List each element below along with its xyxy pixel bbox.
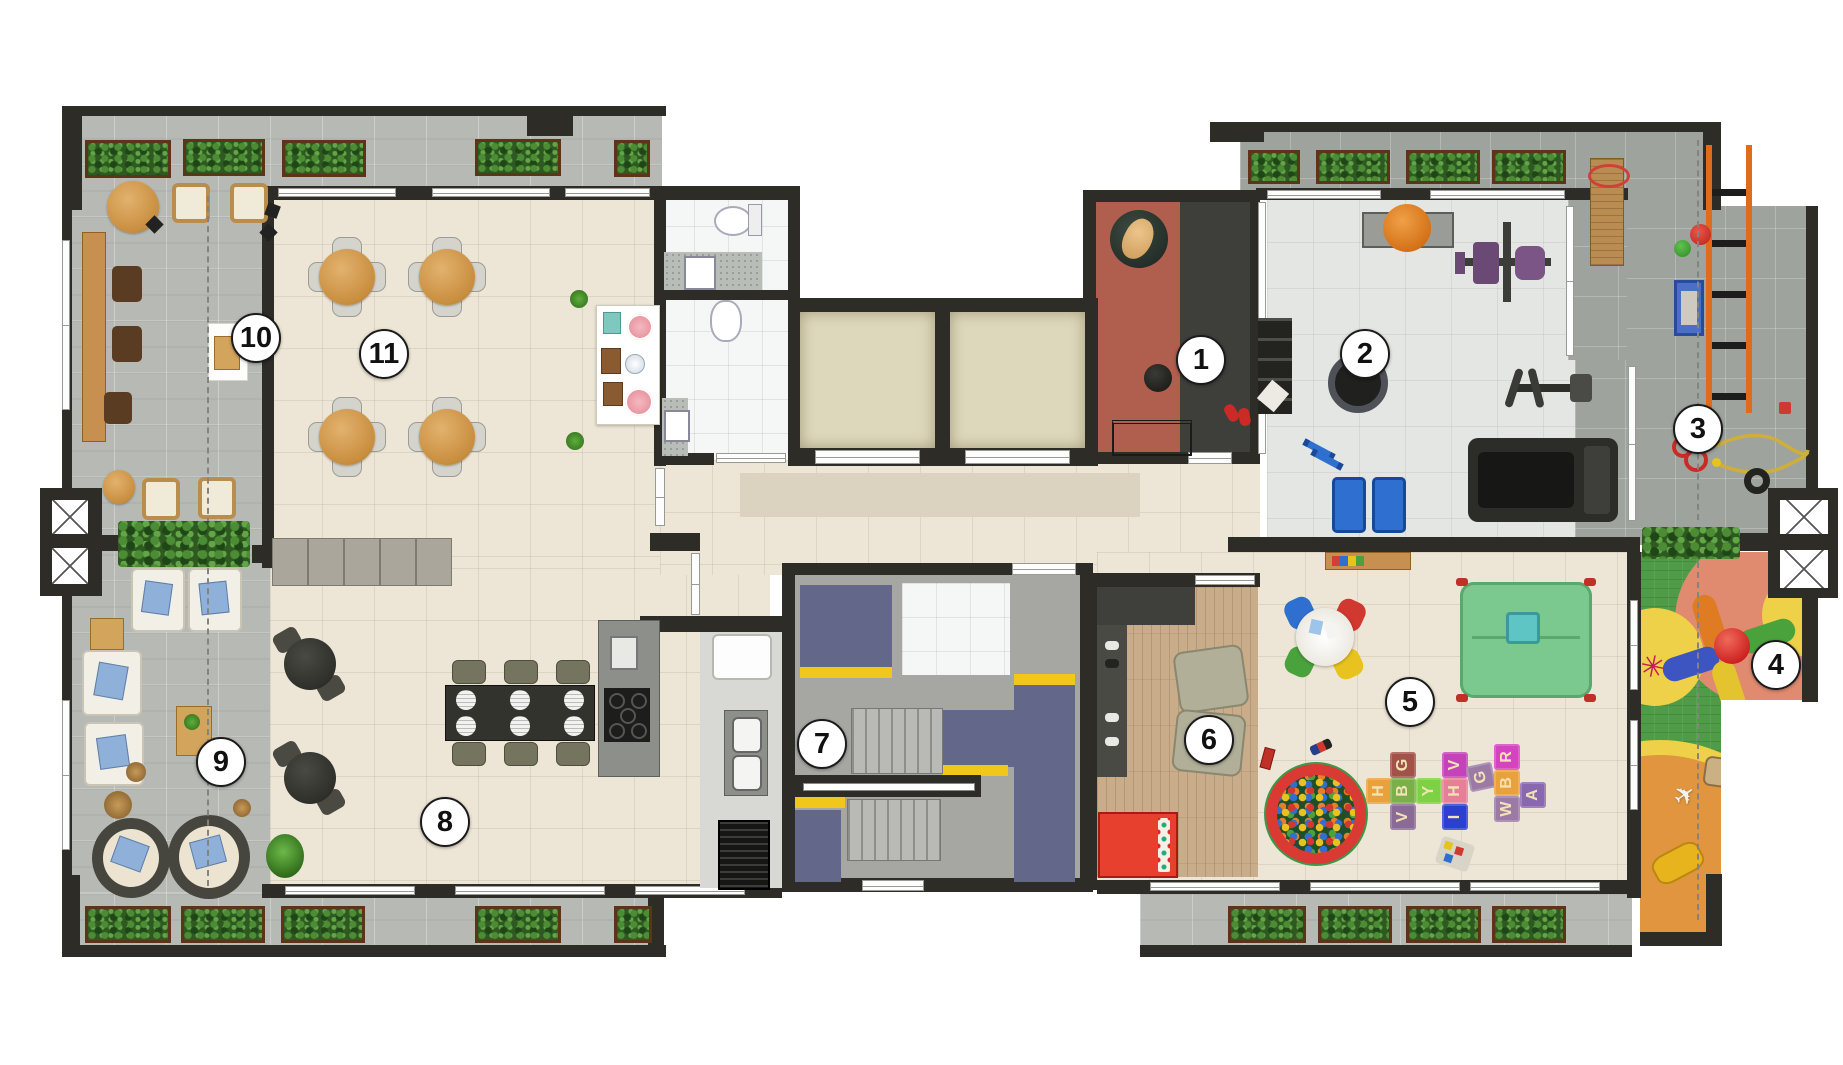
chair	[452, 742, 486, 766]
plate-icon	[625, 354, 645, 374]
bar-stool	[112, 326, 142, 362]
alphabet-mat: B	[1390, 778, 1416, 804]
planter	[475, 139, 561, 176]
kids-table-top	[1296, 608, 1354, 666]
safety-stripe	[795, 797, 845, 808]
door-massage-room	[1188, 452, 1232, 464]
incline-bench	[1332, 477, 1366, 533]
stair-right-wall	[1080, 575, 1097, 890]
exercise-ball	[1383, 204, 1431, 252]
window	[1630, 720, 1638, 810]
playhouse-foot	[1584, 694, 1596, 702]
planter	[281, 906, 365, 943]
towel-rack	[1112, 420, 1192, 456]
stair-landing	[1014, 685, 1075, 882]
tray-icon	[603, 312, 621, 334]
burner	[631, 723, 647, 739]
bistro-set	[278, 750, 342, 810]
floor-plant-icon	[266, 834, 304, 878]
incline-bench	[1372, 477, 1406, 533]
medicine-ball-red	[1690, 224, 1711, 245]
stair-handrail	[803, 783, 975, 791]
climbing-ladder	[1706, 145, 1752, 413]
window	[1310, 882, 1460, 891]
lounge-pouf	[1172, 643, 1250, 714]
round-table	[419, 249, 475, 305]
buffet-table	[596, 305, 660, 425]
bar-stool	[104, 392, 132, 424]
ottoman	[233, 799, 251, 817]
chair	[556, 660, 590, 684]
planter	[1316, 150, 1390, 184]
planter	[1228, 906, 1306, 943]
stair-landing	[942, 710, 1014, 767]
stool-icon	[1144, 364, 1172, 392]
right-elevator-shaft-2	[1778, 548, 1830, 590]
sink-basin	[732, 755, 762, 791]
hedge	[1642, 527, 1740, 559]
door-stairs	[1012, 563, 1076, 575]
room-badge-1: 1	[1176, 335, 1226, 385]
room-badge-10: 10	[231, 313, 281, 363]
room-badge-5: 5	[1385, 677, 1435, 727]
machine-pads	[1455, 252, 1465, 274]
alphabet-mat: G	[1466, 762, 1497, 793]
ball-pit	[1266, 764, 1366, 864]
window	[1195, 575, 1255, 585]
playground-notch-mask	[1721, 700, 1843, 945]
sofa-pillow	[93, 662, 128, 701]
stair-ante-room	[902, 583, 1010, 675]
ottoman	[104, 791, 132, 819]
stair-landing	[800, 585, 892, 673]
room-badge-8: 8	[420, 797, 470, 847]
card-table	[90, 618, 124, 650]
plate-icon	[564, 690, 584, 710]
armchair	[198, 477, 236, 519]
alphabet-mat: A	[1520, 782, 1546, 808]
dining-set	[413, 401, 481, 473]
planter	[1492, 150, 1566, 184]
dining-set	[313, 241, 381, 313]
ball-yellow-small	[1712, 458, 1721, 467]
alphabet-mat: W	[1494, 796, 1520, 822]
weight-machine	[1455, 222, 1561, 302]
game-buttons	[1158, 818, 1170, 872]
tray-icon	[601, 348, 621, 374]
planter	[1406, 150, 1480, 184]
bistro-set	[278, 636, 342, 696]
armchair	[172, 183, 210, 223]
wall	[1640, 932, 1722, 946]
sink-icon	[664, 410, 690, 442]
window	[1150, 882, 1280, 891]
plate-icon	[456, 716, 476, 736]
gamepad-icon	[1105, 641, 1119, 650]
modular-sofa	[272, 538, 452, 586]
round-table	[319, 409, 375, 465]
alphabet-mat: R	[1494, 744, 1520, 770]
kitchen-top-wall	[640, 616, 795, 632]
sofa-pillow	[96, 734, 130, 770]
lobby-runner-rug	[740, 473, 1140, 517]
room-badge-2: 2	[1340, 329, 1390, 379]
wall-stub	[650, 533, 700, 551]
room-badge-6: 6	[1184, 715, 1234, 765]
shrub-icon	[570, 290, 588, 308]
bathroom-right-wall	[788, 186, 800, 300]
media-wall	[1097, 587, 1195, 625]
block	[1443, 853, 1453, 863]
toilet-icon	[714, 206, 752, 236]
treadmill-belt	[1478, 452, 1574, 508]
treadmill-console	[1584, 446, 1610, 514]
daybed-pillow	[141, 580, 173, 616]
burner	[609, 723, 625, 739]
kids-table-set	[1286, 596, 1364, 680]
party-room-left-wall	[262, 186, 274, 568]
cooktop	[604, 688, 650, 742]
block	[1454, 846, 1464, 856]
toilet-tank	[748, 204, 762, 236]
round-table	[419, 409, 475, 465]
alphabet-mat: I	[1442, 804, 1468, 830]
cake-icon	[627, 314, 653, 340]
elevator-cab-1	[800, 312, 935, 448]
tray-icon	[603, 382, 623, 406]
gym-bottom-wall	[1228, 537, 1640, 552]
sink-counter	[724, 710, 768, 796]
bar-counter	[82, 232, 106, 442]
playhouse	[1460, 582, 1592, 698]
window	[1630, 600, 1638, 690]
planter	[85, 140, 171, 178]
round-table-dark	[284, 752, 336, 804]
alphabet-mat: V	[1442, 752, 1468, 778]
door-bathrooms	[716, 453, 786, 463]
dashed-line-right-terrace	[1697, 140, 1699, 520]
table-plant-icon	[184, 714, 200, 730]
window	[1267, 190, 1381, 199]
dashed-line-playground	[1697, 562, 1699, 920]
wall	[527, 108, 573, 136]
safety-stripe	[1014, 674, 1075, 685]
medicine-ball-green	[1674, 240, 1691, 257]
door-gourmet-room	[691, 553, 700, 615]
alphabet-mat: B	[1494, 770, 1520, 796]
chair	[452, 660, 486, 684]
planter	[475, 906, 561, 943]
room-badge-9: 9	[196, 737, 246, 787]
sink-icon	[684, 256, 716, 290]
block	[1443, 840, 1453, 850]
alphabet-mat: Y	[1416, 778, 1442, 804]
daybed-pillow	[198, 581, 229, 616]
bar-stool	[112, 266, 142, 302]
ottoman	[126, 762, 146, 782]
elliptical-machine	[1506, 366, 1596, 412]
chair	[504, 742, 538, 766]
step-box-red	[1779, 402, 1791, 414]
shrub-icon	[566, 432, 584, 450]
bathroom-top-wall	[654, 186, 800, 200]
window	[62, 240, 70, 410]
playhouse-window	[1506, 612, 1540, 644]
kids-bookshelf	[1325, 552, 1411, 570]
wall	[1140, 945, 1632, 957]
alphabet-mat: V	[1390, 804, 1416, 830]
window	[278, 188, 396, 197]
alphabet-mat: H	[1366, 778, 1392, 804]
mat-center	[1681, 291, 1697, 325]
armchair	[142, 478, 180, 520]
alphabet-mat: G	[1390, 752, 1416, 778]
barbecue-grill	[718, 820, 770, 890]
sink-basin	[732, 717, 762, 753]
window	[432, 188, 550, 197]
hedge	[118, 521, 250, 567]
stair-left-wall	[782, 575, 795, 890]
tire-icon	[1744, 468, 1770, 494]
gym-glass-right-upper	[1566, 206, 1574, 356]
planter	[1406, 906, 1481, 943]
wall	[1210, 122, 1264, 142]
room-badge-7: 7	[797, 719, 847, 769]
elliptical-console	[1570, 374, 1592, 402]
burner	[620, 708, 636, 724]
gamepad-icon	[1105, 659, 1119, 668]
counter-sink	[610, 636, 638, 670]
window	[62, 700, 70, 850]
gamepad-icon	[1105, 713, 1119, 722]
spinner-center	[1714, 628, 1750, 664]
wall	[62, 945, 666, 957]
plate-icon	[510, 716, 530, 736]
bench-strap-icon	[1588, 164, 1630, 188]
stair-landing	[795, 810, 841, 882]
burner	[609, 693, 625, 709]
gamepad-icon	[1105, 737, 1119, 746]
window	[1470, 882, 1600, 891]
playhouse-foot	[1456, 694, 1468, 702]
room-badge-11: 11	[359, 329, 409, 379]
alphabet-mat: H	[1442, 778, 1468, 804]
window	[455, 886, 605, 895]
right-wing-top-wall	[1240, 122, 1706, 132]
treadmill	[1468, 438, 1618, 522]
window	[1430, 190, 1565, 199]
window	[565, 188, 650, 197]
armchair	[230, 183, 268, 223]
door-party-room	[655, 468, 665, 526]
cake-icon	[625, 388, 653, 416]
game-table-red	[1098, 812, 1178, 878]
elevator-door-2	[965, 450, 1070, 464]
round-table	[319, 249, 375, 305]
gym-glass-right-lower	[1628, 366, 1636, 521]
fridge	[712, 634, 772, 680]
plate-icon	[564, 716, 584, 736]
playhouse-foot	[1456, 578, 1468, 586]
playhouse-foot	[1584, 578, 1596, 586]
planter	[1318, 906, 1392, 943]
chair	[556, 742, 590, 766]
left-elevator-shaft-1	[50, 498, 90, 536]
room-badge-3: 3	[1673, 404, 1723, 454]
round-table-dark	[284, 638, 336, 690]
bathroom-divider-wall	[660, 290, 790, 300]
machine-pads	[1473, 242, 1499, 284]
toilet-icon	[710, 300, 742, 342]
planter	[181, 906, 265, 943]
exercise-mat-blue	[1674, 280, 1704, 336]
burner	[631, 693, 647, 709]
stair-flight-upper	[851, 708, 943, 774]
dining-table-large	[445, 685, 595, 741]
machine-frame	[1503, 222, 1511, 302]
floor-plan: ✳ ✈	[0, 0, 1843, 1065]
planter	[282, 140, 366, 177]
stair-flight-lower	[847, 799, 941, 861]
plate-icon	[510, 690, 530, 710]
media-console	[1097, 625, 1127, 777]
elevator-cab-2	[950, 312, 1085, 448]
planter	[183, 139, 265, 176]
window	[285, 886, 415, 895]
wall	[62, 875, 80, 950]
machine-pads	[1515, 246, 1545, 280]
planter	[85, 906, 171, 943]
planter	[614, 906, 652, 943]
planter	[1248, 150, 1300, 184]
planter	[1492, 906, 1566, 943]
left-elevator-shaft-2	[50, 546, 90, 586]
dining-set	[313, 401, 381, 473]
safety-stripe	[800, 667, 892, 678]
dining-set	[413, 241, 481, 313]
flower-table	[103, 470, 135, 504]
chair	[504, 660, 538, 684]
planter	[614, 140, 650, 177]
right-elevator-shaft-1	[1778, 498, 1830, 536]
wall	[62, 106, 666, 116]
elevator-door-1	[815, 450, 920, 464]
room-badge-4: 4	[1751, 640, 1801, 690]
plate-icon	[456, 690, 476, 710]
